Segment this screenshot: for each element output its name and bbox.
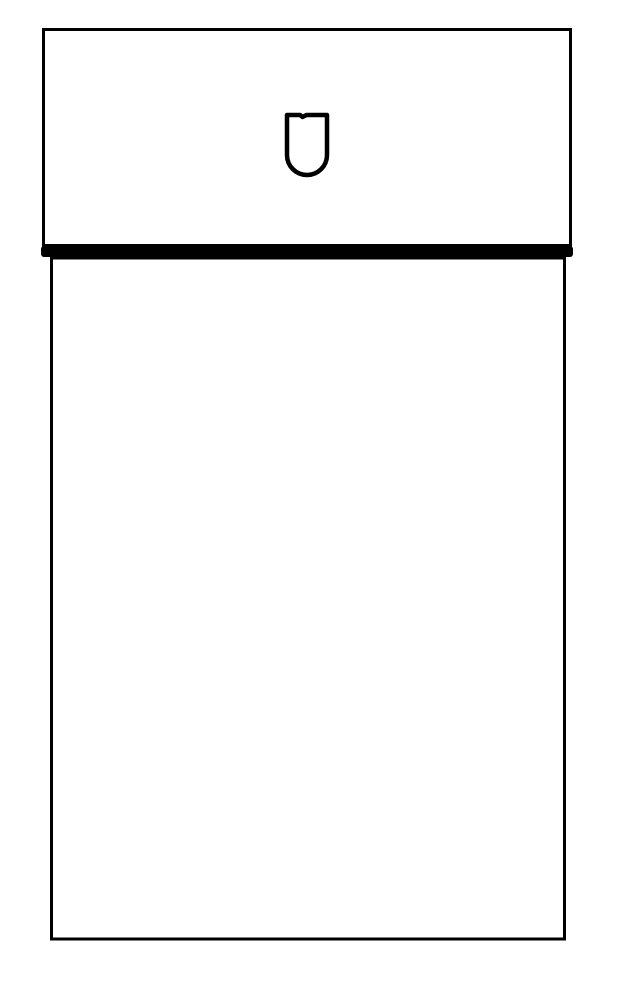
lower-panel-outline xyxy=(52,258,565,939)
keyhole-handle-cutout xyxy=(287,115,327,175)
drawing-canvas: Front-view black line drawing of a two-p… xyxy=(0,0,631,1000)
upper-panel-outline xyxy=(44,30,571,246)
divider-band xyxy=(41,246,573,257)
cabinet-drawing-svg: Front-view black line drawing of a two-p… xyxy=(0,0,631,1000)
